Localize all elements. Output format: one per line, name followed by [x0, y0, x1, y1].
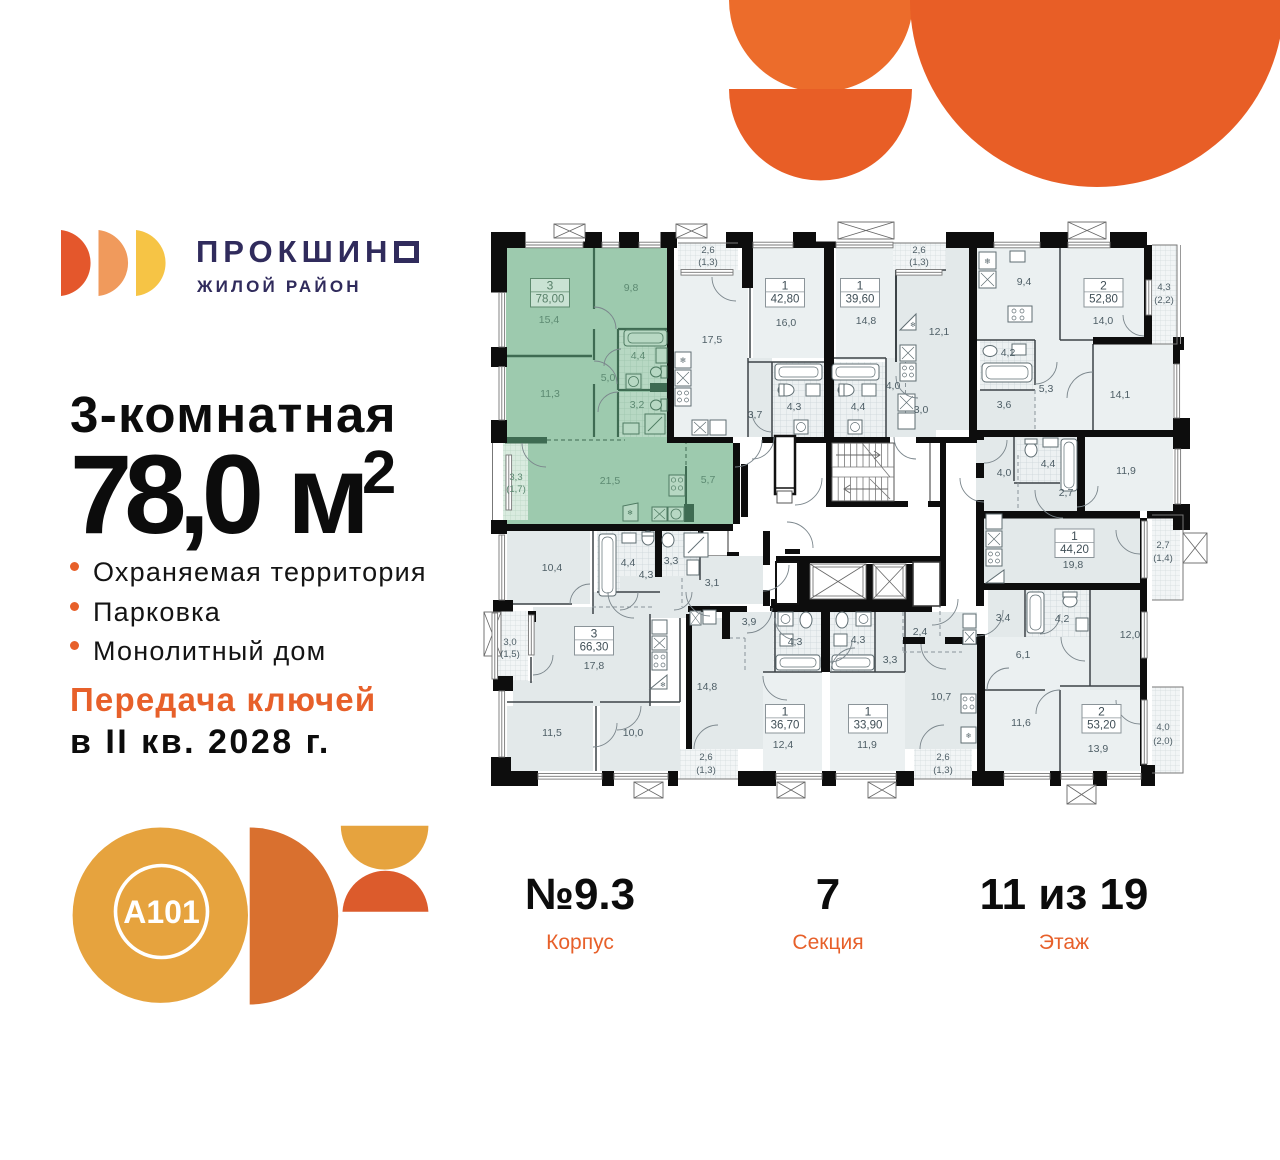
svg-text:❄: ❄ [627, 509, 633, 517]
svg-text:3,3: 3,3 [664, 555, 679, 567]
svg-text:10,0: 10,0 [623, 727, 644, 739]
svg-text:4,2: 4,2 [1001, 347, 1016, 359]
svg-text:12,1: 12,1 [929, 326, 950, 338]
svg-text:3: 3 [591, 626, 598, 640]
svg-text:3: 3 [547, 278, 554, 292]
svg-text:4,3: 4,3 [787, 401, 802, 413]
svg-text:17,5: 17,5 [702, 334, 723, 346]
svg-text:11,5: 11,5 [542, 727, 562, 739]
svg-text:14,0: 14,0 [1093, 315, 1114, 327]
svg-text:6,1: 6,1 [1016, 649, 1031, 661]
svg-text:5,7: 5,7 [701, 474, 716, 486]
svg-text:21,5: 21,5 [600, 475, 621, 487]
svg-text:4,3: 4,3 [639, 569, 654, 581]
svg-text:52,80: 52,80 [1089, 294, 1118, 306]
svg-text:4,2: 4,2 [1055, 613, 1070, 625]
svg-text:17,8: 17,8 [584, 660, 605, 672]
svg-text:5,0: 5,0 [601, 372, 616, 384]
svg-text:11,9: 11,9 [857, 739, 877, 751]
svg-text:(2,2): (2,2) [1154, 295, 1174, 306]
svg-text:3,4: 3,4 [996, 612, 1011, 624]
svg-text:3,6: 3,6 [997, 399, 1012, 411]
svg-text:3,2: 3,2 [630, 399, 645, 411]
svg-text:15,4: 15,4 [539, 314, 560, 326]
svg-text:13,9: 13,9 [1088, 743, 1109, 755]
svg-text:3,0: 3,0 [914, 404, 929, 416]
svg-text:❄: ❄ [910, 321, 916, 329]
svg-text:12,0: 12,0 [1120, 629, 1141, 641]
svg-text:4,3: 4,3 [788, 636, 803, 648]
svg-text:2,6: 2,6 [699, 752, 712, 763]
svg-text:1: 1 [857, 278, 864, 292]
svg-text:12,4: 12,4 [773, 739, 794, 751]
svg-text:4,4: 4,4 [851, 401, 866, 413]
svg-text:(1,3): (1,3) [698, 257, 718, 268]
svg-text:9,4: 9,4 [1017, 276, 1032, 288]
svg-text:(1,7): (1,7) [506, 484, 526, 495]
svg-text:❄: ❄ [966, 732, 972, 740]
svg-text:1: 1 [1071, 529, 1078, 543]
svg-text:(1,3): (1,3) [696, 765, 716, 776]
svg-text:3,9: 3,9 [742, 616, 757, 628]
svg-text:1: 1 [865, 704, 872, 718]
svg-text:11,9: 11,9 [1116, 465, 1136, 477]
svg-text:16,0: 16,0 [776, 317, 797, 329]
svg-text:42,80: 42,80 [771, 294, 800, 306]
svg-text:4,0: 4,0 [1156, 722, 1169, 733]
svg-text:10,7: 10,7 [931, 691, 952, 703]
svg-text:(1,4): (1,4) [1153, 553, 1173, 564]
svg-text:(1,5): (1,5) [500, 649, 520, 660]
svg-text:3,3: 3,3 [509, 472, 522, 483]
svg-text:10,4: 10,4 [542, 562, 563, 574]
svg-text:❄: ❄ [984, 257, 991, 266]
svg-text:14,8: 14,8 [856, 315, 877, 327]
svg-text:36,70: 36,70 [771, 720, 800, 732]
svg-text:9,8: 9,8 [624, 282, 639, 294]
svg-text:2,6: 2,6 [912, 245, 925, 256]
svg-text:4,3: 4,3 [1157, 282, 1170, 293]
svg-text:66,30: 66,30 [580, 642, 609, 654]
svg-text:14,1: 14,1 [1110, 389, 1131, 401]
svg-text:❄: ❄ [660, 681, 666, 689]
svg-text:2,7: 2,7 [1059, 487, 1074, 499]
svg-text:(1,3): (1,3) [909, 257, 929, 268]
svg-text:14,8: 14,8 [697, 681, 718, 693]
svg-text:4,4: 4,4 [1041, 458, 1056, 470]
svg-text:(2,0): (2,0) [1153, 736, 1173, 747]
svg-text:33,90: 33,90 [854, 720, 883, 732]
svg-text:39,60: 39,60 [846, 294, 875, 306]
svg-text:2: 2 [1098, 704, 1105, 718]
svg-text:4,4: 4,4 [621, 557, 636, 569]
svg-text:3,3: 3,3 [883, 654, 898, 666]
svg-text:2,6: 2,6 [701, 245, 714, 256]
svg-text:44,20: 44,20 [1060, 544, 1089, 556]
svg-text:53,20: 53,20 [1087, 720, 1116, 732]
svg-text:2,6: 2,6 [936, 752, 949, 763]
svg-text:A101: A101 [123, 894, 200, 930]
svg-text:3,0: 3,0 [503, 637, 516, 648]
svg-text:11,6: 11,6 [1011, 717, 1031, 729]
svg-text:2: 2 [1100, 278, 1107, 292]
svg-text:5,3: 5,3 [1039, 383, 1054, 395]
svg-text:3,1: 3,1 [705, 577, 720, 589]
svg-text:1: 1 [782, 704, 789, 718]
svg-text:1: 1 [782, 278, 789, 292]
svg-text:4,0: 4,0 [997, 467, 1012, 479]
svg-text:4,0: 4,0 [886, 380, 901, 392]
svg-text:3,7: 3,7 [748, 409, 763, 421]
svg-text:(1,3): (1,3) [933, 765, 953, 776]
svg-text:2,4: 2,4 [913, 626, 928, 638]
svg-text:78,00: 78,00 [536, 294, 565, 306]
svg-text:❄: ❄ [680, 356, 687, 365]
svg-text:4,3: 4,3 [851, 634, 866, 646]
svg-text:4,4: 4,4 [631, 350, 646, 362]
svg-text:19,8: 19,8 [1063, 559, 1084, 571]
svg-text:11,3: 11,3 [540, 388, 560, 400]
svg-text:2,7: 2,7 [1156, 540, 1169, 551]
